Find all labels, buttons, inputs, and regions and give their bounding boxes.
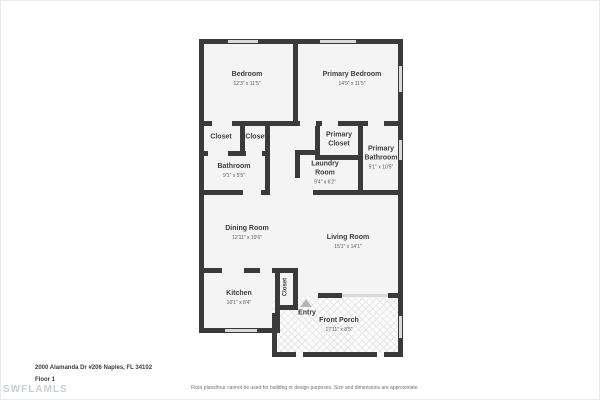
room-label-living-room: Living Room 15'1" x 14'1" [327, 234, 369, 250]
door-opening-bathroom [243, 190, 261, 195]
room-label-closet-a: Closet [210, 134, 231, 143]
room-dims: 9'1" x 5'5" [217, 173, 250, 179]
floor-label: Floor 1 [35, 377, 55, 383]
room-name: Primary Bathroom [359, 146, 403, 164]
door-opening-closet-a [208, 151, 228, 156]
room-dims: 15'1" x 14'1" [327, 244, 369, 250]
room-label-front-porch: Front Porch 17'11" x 8'5" [319, 317, 359, 333]
window-bedroom-top [228, 40, 258, 43]
door-opening-closet-b [246, 151, 262, 156]
room-label-bedroom: Bedroom 12'3" x 11'5" [232, 71, 263, 87]
room-name: Primary Bedroom [323, 71, 382, 80]
wall-front-left [318, 293, 342, 298]
room-name: Front Porch [319, 317, 359, 326]
door-opening-primary-bathroom [368, 121, 384, 126]
window-front-wall [342, 294, 388, 297]
room-name: Living Room [327, 234, 369, 243]
door-opening-hall [300, 121, 316, 126]
wall-front-right [388, 293, 403, 298]
room-label-primary-bedroom: Primary Bedroom 14'9" x 11'5" [323, 71, 382, 87]
door-opening-kitchen-2 [260, 268, 272, 273]
wall-laundry-left [295, 150, 300, 178]
room-name: Bedroom [232, 71, 263, 80]
room-label-bathroom: Bathroom 9'1" x 5'5" [217, 163, 250, 179]
wall-primary-closet-bottom [315, 155, 363, 160]
room-name: Closet [245, 134, 266, 143]
room-name: Primary Closet [319, 131, 359, 149]
wall-entry-closet-bottom [275, 305, 298, 310]
wall-closet-divider [240, 126, 245, 151]
porch-rail-gap-left [296, 352, 303, 357]
room-label-laundry-room: Laundry Room 9'4" x 6'2" [305, 161, 345, 186]
wall-bedroom-divider [293, 44, 298, 121]
floor-plan-image: Bedroom 12'3" x 11'5" Primary Bedroom 14… [0, 0, 600, 400]
room-dims: 17'11" x 8'5" [319, 327, 359, 333]
window-primary-bedroom-top [320, 40, 356, 43]
door-opening-bedroom [212, 121, 232, 126]
room-dims: 5'1" x 10'5" [359, 164, 403, 170]
room-label-kitchen: Kitchen 10'1" x 8'4" [226, 290, 252, 306]
room-name: Entry [298, 310, 316, 319]
wall-left [199, 39, 204, 333]
wall-laundry-bottom [313, 190, 403, 195]
door-opening-primary-closet [322, 121, 338, 126]
room-name: Kitchen [226, 290, 252, 299]
room-name: Laundry Room [305, 161, 345, 179]
wall-dining-bottom [199, 268, 295, 273]
window-kitchen-bottom [225, 329, 257, 332]
room-dims: 14'9" x 11'5" [323, 81, 382, 87]
room-label-entry-closet: Closet [282, 278, 290, 296]
door-opening-kitchen [222, 268, 244, 273]
room-label-closet-b: Closet [245, 134, 266, 143]
room-dims: 10'1" x 8'4" [226, 300, 252, 306]
mls-watermark: SWFLAMLS [3, 384, 68, 395]
room-name: Closet [282, 278, 290, 296]
entry-arrow-icon [300, 299, 312, 307]
window-primary-bedroom-right [399, 66, 402, 92]
room-label-primary-closet: Primary Closet [319, 131, 359, 149]
room-label-dining-room: Dining Room 12'11" x 10'6" [225, 225, 269, 241]
room-name: Bathroom [217, 163, 250, 172]
room-dims: 9'4" x 6'2" [305, 179, 345, 185]
disclaimer-text: Floor plans/tour cannot be used for buil… [180, 385, 430, 391]
porch-rail-gap-right [377, 352, 384, 357]
room-name: Dining Room [225, 225, 269, 234]
wall-porch-left [272, 313, 277, 357]
room-label-primary-bathroom: Primary Bathroom 5'1" x 10'5" [359, 146, 403, 171]
room-dims: 12'3" x 11'5" [232, 81, 263, 87]
wall-entry-closet-right [293, 268, 298, 310]
window-porch-right [399, 316, 402, 338]
property-address: 2000 Alamanda Dr #206 Naples, FL 34102 [35, 365, 152, 371]
room-name: Closet [210, 134, 231, 143]
room-label-entry: Entry [298, 310, 316, 319]
room-dims: 12'11" x 10'6" [225, 235, 269, 241]
